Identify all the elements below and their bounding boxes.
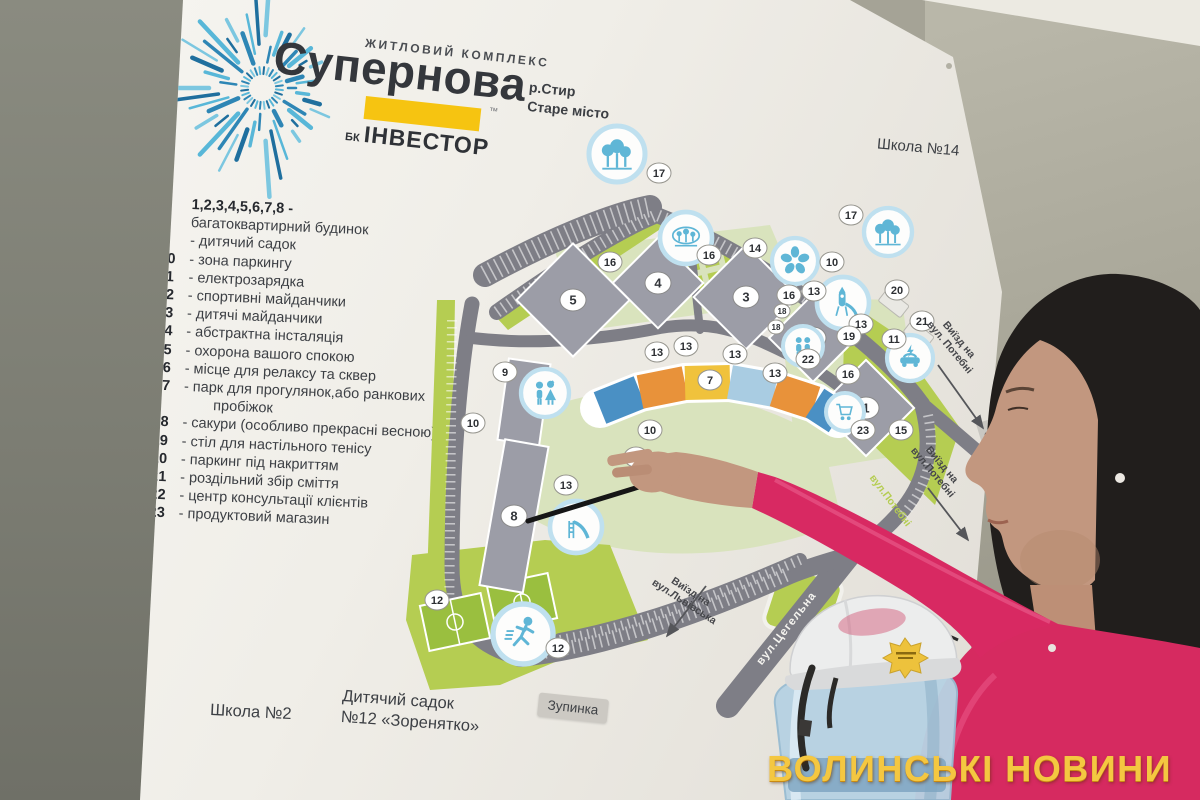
badge-number: 14 (749, 243, 762, 255)
map-badge-14: 14 (743, 238, 767, 258)
sunburst-ray (219, 109, 247, 148)
building-number: 1 (862, 401, 869, 416)
building-number: 2 (809, 331, 816, 346)
sunburst-ray (243, 33, 254, 63)
building-7-segment (640, 383, 685, 392)
road-label-text: Виїзд на (923, 444, 961, 486)
sunburst-ray (270, 100, 274, 106)
map-badge-13: 13 (723, 344, 747, 364)
building-7-segment (815, 403, 838, 418)
news-photo-scene: ЖИТЛОВИЙ КОМПЛЕКС Супернова ™ БКІНВЕСТОР… (0, 0, 1200, 800)
sunburst-ray (237, 129, 248, 159)
ev-charging-icon (887, 335, 933, 381)
sunburst-ray (266, 141, 270, 197)
road-label-text: Виїзд на (669, 575, 713, 609)
sunburst-ray (183, 40, 217, 61)
sunburst-ray (267, 101, 269, 108)
map-badge-16: 16 (598, 252, 622, 272)
sunburst-ray (251, 70, 255, 76)
badge-number: 16 (630, 452, 642, 464)
map-badge-19: 19 (837, 326, 861, 346)
sunburst-ray (293, 131, 300, 141)
sunburst-ray (275, 92, 282, 94)
developer-prefix: БК (344, 131, 360, 145)
sunburst-ray (241, 86, 248, 87)
building-1: 1 (818, 360, 914, 456)
road-label-text: вул.Потебні (867, 472, 914, 529)
sunburst-ray (242, 93, 249, 95)
sport-courts (420, 573, 557, 651)
badge-number: 16 (783, 290, 795, 302)
map-badge-9: 9 (493, 362, 517, 382)
exit-arrow (928, 488, 968, 540)
road-label: вул.Цегельна (755, 590, 819, 668)
badge-number: 13 (769, 368, 781, 380)
building-7-segment (600, 392, 640, 408)
building-7-segment (730, 382, 775, 390)
sunburst-ray (242, 81, 249, 83)
road-label-text: вул. Потебні (924, 319, 975, 376)
sunburst-ray (276, 85, 283, 86)
flower-icon (772, 238, 818, 284)
sunburst-ray (247, 98, 252, 103)
map-badge-13: 13 (554, 475, 578, 495)
badge-number: 10 (826, 257, 838, 269)
location-note: р.Стир Старе місто (526, 78, 612, 124)
sunburst-ray (255, 101, 257, 108)
trees-icon (864, 208, 912, 256)
road-label: вул.Потебні (867, 472, 914, 529)
badge-number: 17 (653, 168, 665, 180)
road-label: Виїзд навул.Львівська (650, 567, 725, 628)
sunburst-ray (196, 116, 217, 128)
sunburst-ray (259, 114, 260, 130)
badge-number: 23 (857, 425, 869, 437)
map-badge-11: 11 (882, 329, 906, 349)
map-badge-23: 23 (851, 420, 875, 440)
road-label-text: вул.Цегельна (755, 590, 819, 668)
kids-icon (521, 369, 569, 417)
map-badge-13: 13 (674, 336, 698, 356)
sunburst-ray (255, 68, 257, 75)
sunburst-ray (266, 68, 268, 75)
sunburst-ray (209, 98, 238, 111)
map-badge-16: 16 (624, 447, 648, 467)
sunburst-ray (256, 0, 259, 44)
sunburst-ray (200, 114, 238, 155)
news-watermark: ВОЛИНСЬКІ НОВИНИ (767, 748, 1172, 790)
trademark-symbol: ™ (489, 106, 499, 117)
park-icon (660, 212, 712, 264)
rocket-slide-icon (817, 277, 869, 329)
badge-number: 13 (729, 349, 741, 361)
sunburst-ray (250, 122, 255, 145)
board-pin (946, 63, 952, 69)
map-badge-13: 13 (802, 281, 826, 301)
building-number: 5 (569, 293, 576, 308)
badge-number: 13 (651, 347, 663, 359)
parking-ticks (449, 207, 931, 654)
covered-parking-pads (878, 289, 934, 349)
badge-number: 16 (703, 250, 715, 262)
map-badge-7: 7 (698, 370, 722, 390)
building-number: 3 (742, 290, 749, 305)
sunburst-ray (215, 116, 227, 126)
map-badge-13: 13 (645, 342, 669, 362)
building-9 (497, 358, 550, 445)
sunburst-ray (272, 98, 277, 103)
map-badge-12: 12 (546, 638, 570, 658)
map-badge-10: 10 (638, 420, 662, 440)
sunburst-ray (259, 67, 260, 74)
building-7-segment (685, 382, 730, 383)
sunburst-ray (274, 121, 287, 159)
road-label: Виїзд навул. Потебні (924, 311, 984, 376)
exit-arrow (938, 365, 983, 428)
sunburst-ray (247, 73, 252, 78)
sunburst-ray (219, 135, 237, 171)
building-7 (600, 382, 838, 418)
label-kindergarten-12: Дитячий садок №12 «Зоренятко» (340, 686, 481, 738)
road-label: Виїзд навул.Потебні (908, 437, 966, 500)
sunburst-ray (311, 109, 329, 117)
running-icon (493, 604, 553, 664)
badge-number: 20 (891, 285, 903, 297)
sunburst-ray (289, 110, 311, 128)
sunburst-ray (200, 21, 238, 62)
badge-number: 13 (560, 480, 572, 492)
label-bus-stop: Зупинка (537, 692, 609, 723)
badge-number: 16 (842, 369, 854, 381)
building-4: 4 (613, 238, 704, 329)
badge-number: 9 (502, 367, 508, 379)
road-label-text: Виїзд на (940, 319, 978, 361)
badge-number: 13 (855, 319, 867, 331)
map-badge-15: 15 (889, 420, 913, 440)
slide-icon (550, 501, 602, 553)
sunburst-ray (263, 67, 264, 74)
badge-number: 21 (916, 316, 928, 328)
sunburst-ray (244, 77, 250, 81)
badge-number: 11 (888, 334, 900, 346)
badge-number: 22 (802, 354, 814, 366)
badge-number: 17 (845, 210, 857, 222)
sunburst-ray (267, 47, 270, 63)
sunburst-ray (274, 111, 281, 125)
badge-number: 15 (895, 425, 907, 437)
building-number: 4 (654, 276, 662, 291)
sunburst-ray (227, 20, 238, 41)
map-legend: 1,2,3,4,5,6,7,8 -багатоквартирний будино… (178, 196, 477, 535)
map-badge-13: 13 (763, 363, 787, 383)
building-7-segment (775, 390, 815, 403)
map-badge-10: 10 (820, 252, 844, 272)
sunburst-ray (276, 89, 283, 90)
sunburst-ray (205, 72, 228, 78)
badge-number: 13 (808, 286, 820, 298)
cart-icon (826, 393, 864, 431)
sunburst-ray (244, 96, 250, 100)
exit-arrow (667, 586, 706, 636)
sunburst-ray (241, 90, 248, 91)
label-school-2: Школа №2 (210, 701, 292, 724)
badge-number: 10 (644, 425, 656, 437)
sunburst-ray (297, 93, 309, 95)
building-5: 5 (516, 243, 629, 356)
badge-number: 18 (772, 323, 781, 332)
badge-number: 7 (707, 375, 713, 387)
map-badge-20: 20 (885, 280, 909, 300)
sunburst-ray (266, 0, 270, 35)
badge-number: 16 (604, 257, 616, 269)
road-label-text: вул.Львівська (650, 577, 719, 628)
building-8: 8 (479, 439, 548, 592)
trees-icon (589, 126, 645, 182)
sunburst-ray (247, 15, 255, 54)
badge-number: 13 (680, 341, 692, 353)
sunburst-ray (274, 95, 280, 99)
sunburst-ray (260, 102, 261, 109)
badge-number: 18 (778, 307, 787, 316)
sunburst-ray (284, 102, 305, 114)
map-dynamic-layer: 543218 171716161410131618181319202111221… (425, 126, 1013, 668)
map-badge-17: 17 (647, 163, 671, 183)
sunburst-ray (271, 131, 281, 178)
sunburst-ray (190, 97, 229, 108)
map-badge-16: 16 (777, 285, 801, 305)
map-badge-22: 22 (796, 349, 820, 369)
sunburst-ray (251, 100, 255, 106)
badge-number: 12 (431, 595, 443, 607)
building-3: 3 (694, 245, 799, 350)
building-2: 2 (769, 294, 857, 382)
map-roads (452, 207, 978, 706)
map-badge-18: 18 (774, 304, 790, 318)
map-badge-16: 16 (836, 364, 860, 384)
road-label-text: вул.Потебні (908, 445, 957, 500)
badge-number: 19 (843, 331, 855, 343)
sunburst-ray (227, 39, 236, 52)
map-badge-17: 17 (839, 205, 863, 225)
sunburst-ray (192, 58, 221, 71)
badge-number: 12 (552, 643, 564, 655)
building-number: 8 (510, 509, 517, 524)
map-badge-18: 18 (768, 320, 784, 334)
sunburst-ray (171, 94, 219, 101)
map-badge-16: 16 (697, 245, 721, 265)
sunburst-ray (304, 100, 319, 104)
map-badge-21: 21 (910, 311, 934, 331)
sunburst-ray (205, 41, 242, 71)
sunburst-ray (220, 82, 236, 84)
map-green-areas (406, 213, 960, 690)
people-icon (783, 326, 823, 366)
sunburst-ray (292, 120, 297, 126)
map-badge-13: 13 (849, 314, 873, 334)
label-school-14: Школа №14 (876, 135, 960, 159)
map-badge-12: 12 (425, 590, 449, 610)
sunburst-ray (264, 102, 265, 109)
